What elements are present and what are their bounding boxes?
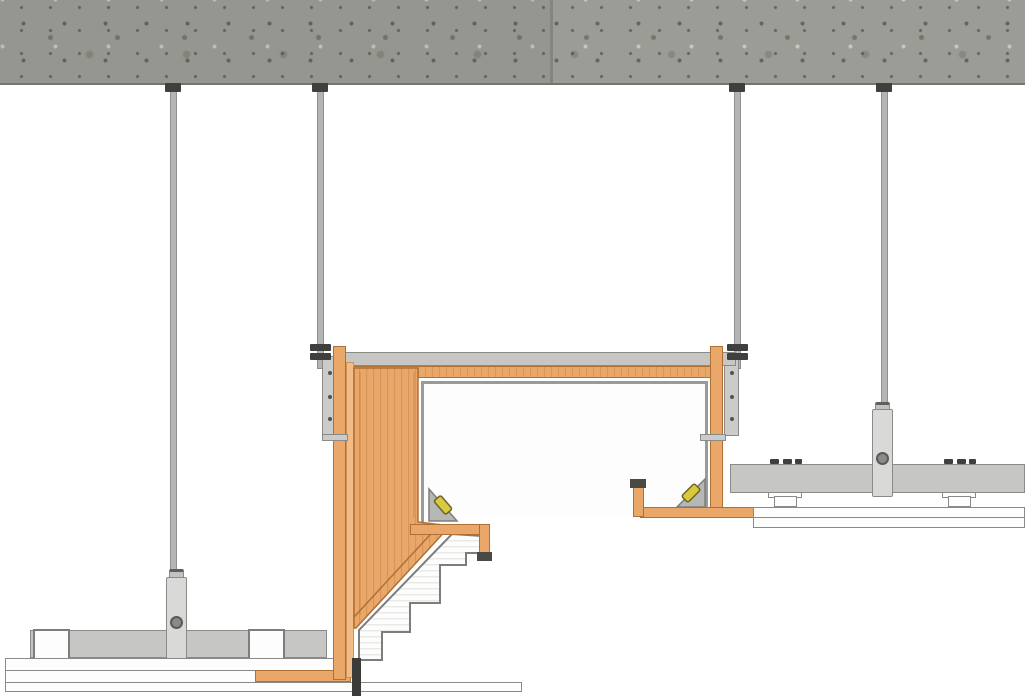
channel-clip-tab — [783, 459, 792, 464]
slab-anchor-clip-2 — [312, 83, 328, 92]
slab-anchor-clip-4 — [876, 83, 892, 92]
hanger-rod-1 — [171, 85, 176, 571]
right-hanger-adjuster-bolt — [876, 452, 889, 465]
left-hanger-adjuster-bolt — [170, 616, 183, 629]
slab-joint-line — [550, 0, 553, 83]
bulkhead-left-post — [333, 346, 346, 680]
rod-nut — [310, 353, 331, 360]
channel-clip-tab — [770, 459, 779, 464]
connector-clip-body — [774, 496, 797, 507]
left-bracket-foot — [322, 434, 348, 441]
bulkhead-edge-trim — [352, 658, 361, 696]
screw-dot — [328, 395, 332, 399]
slab-anchor-clip-1 — [165, 83, 181, 92]
screw-dot — [730, 395, 734, 399]
hanger-rod-4 — [882, 85, 887, 402]
left-cove-hook-cap — [477, 552, 492, 561]
right-bracket-plate — [724, 356, 739, 436]
right-ceiling-board-layer-2 — [753, 517, 1025, 528]
screw-dot — [730, 417, 734, 421]
stepped-cornice-molding — [350, 530, 490, 665]
channel-clip-tab — [969, 459, 976, 464]
channel-clip-tab — [795, 459, 802, 464]
rod-nut — [310, 344, 331, 351]
concrete-slab — [0, 0, 1025, 85]
slab-anchor-clip-3 — [729, 83, 745, 92]
channel-clip-tab — [957, 459, 966, 464]
connector-clip-body — [948, 496, 971, 507]
left-cove-hook — [479, 524, 490, 554]
rod-nut — [727, 353, 748, 360]
left-ceiling-board-layer-3 — [5, 682, 522, 692]
ceiling-section-diagram — [0, 0, 1025, 696]
hanger-rod-3 — [735, 85, 740, 368]
right-cove-hook-cap — [630, 479, 646, 488]
left-corner-gusset — [425, 480, 465, 530]
hanger-rod-2 — [318, 85, 323, 368]
right-bracket-foot — [700, 434, 726, 441]
screw-dot — [328, 371, 332, 375]
screw-dot — [328, 417, 332, 421]
rod-nut — [727, 344, 748, 351]
screw-dot — [730, 371, 734, 375]
right-corner-gusset — [672, 470, 712, 515]
channel-clip-tab — [944, 459, 953, 464]
slab-panel-shade — [0, 0, 550, 83]
